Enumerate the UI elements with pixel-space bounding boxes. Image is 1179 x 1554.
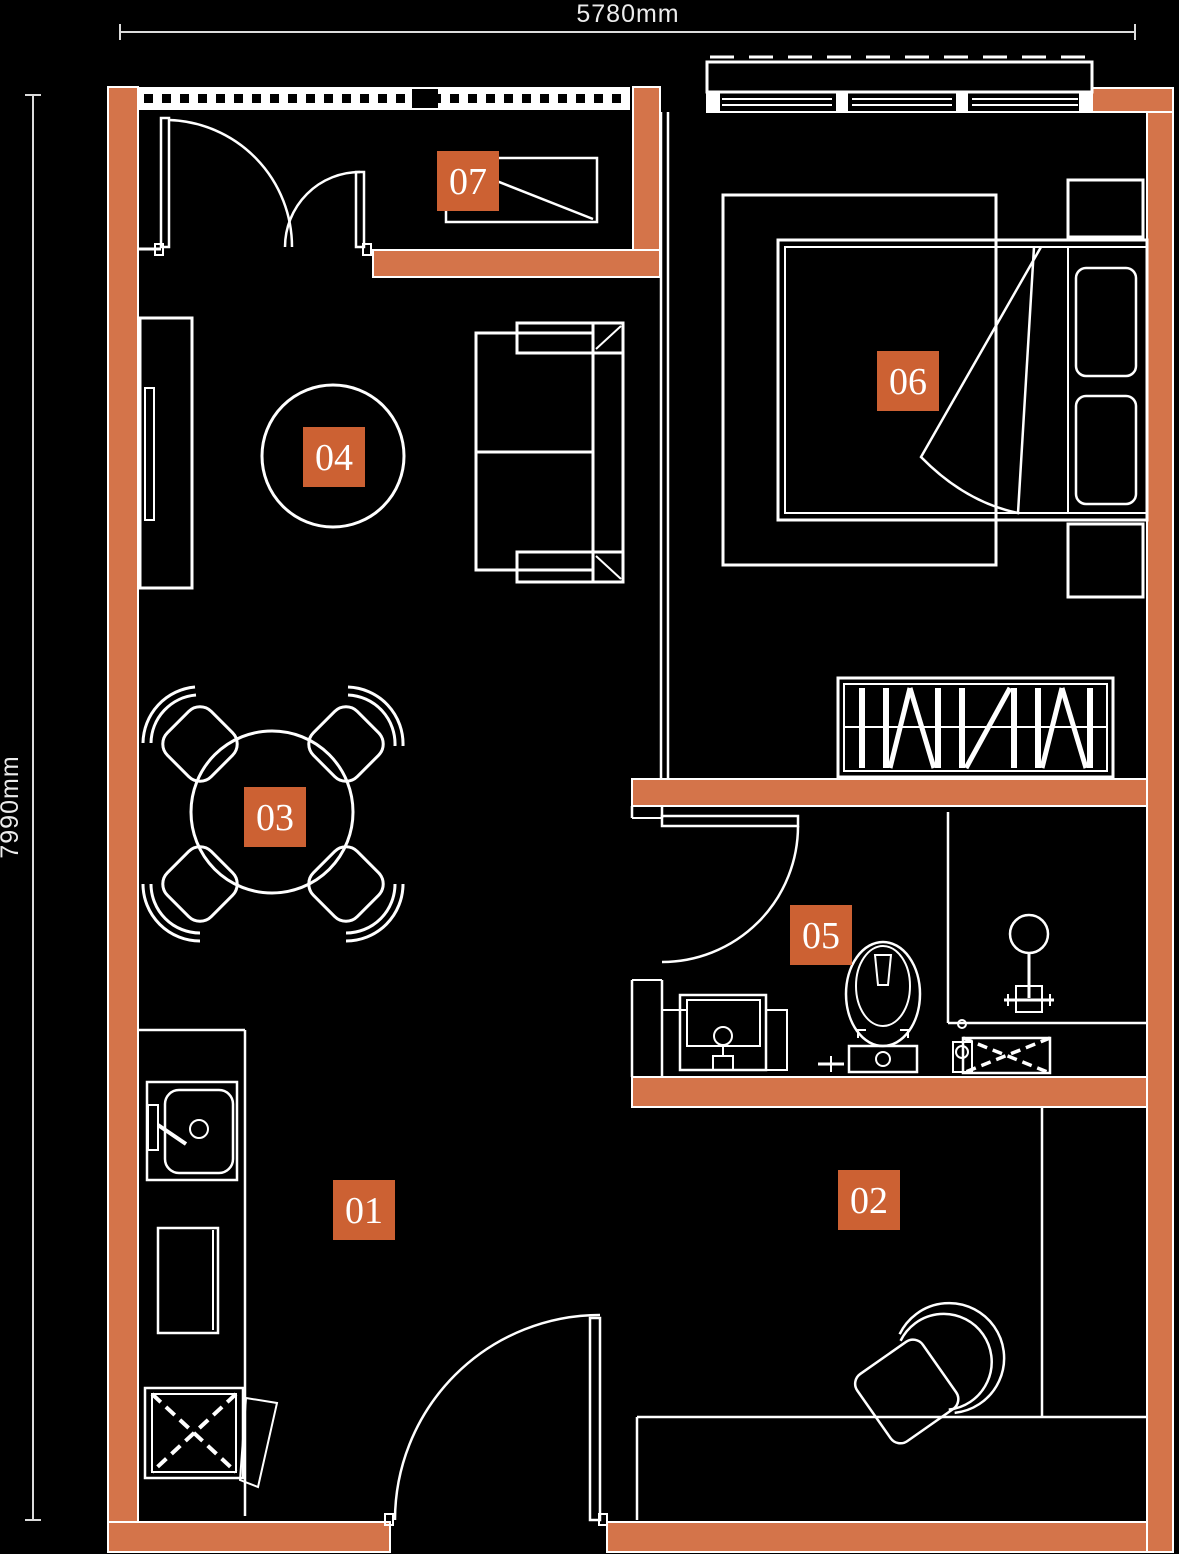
wall-bottom-right (607, 1522, 1173, 1552)
fridge (158, 1228, 218, 1333)
bathroom (632, 806, 1147, 1077)
balcony-window (138, 87, 630, 110)
floor-plan-drawing: 5780mm 7990mm (0, 0, 1179, 1554)
floor-drain-tap (818, 1056, 844, 1072)
room-label-04: 04 (303, 427, 365, 487)
pillow (1076, 396, 1136, 504)
wall-right (1147, 88, 1173, 1552)
room-label-01: 01 (333, 1180, 395, 1240)
bed (778, 240, 1147, 520)
vanity-sink (680, 995, 787, 1070)
wall-bathroom-top (632, 779, 1147, 806)
wall-bathroom-bottom (632, 1077, 1147, 1107)
tv (145, 388, 154, 520)
desk-chair (841, 1282, 1026, 1457)
room-label-07: 07 (437, 151, 499, 211)
room-number: 07 (449, 161, 487, 203)
pillow (1076, 268, 1136, 376)
room-label-05: 05 (790, 905, 852, 965)
door-swing-arc (285, 172, 360, 247)
dining-chair (143, 687, 244, 788)
door-swing-arc (169, 120, 292, 247)
bathroom-door-leaf (662, 816, 798, 826)
dining-chair (302, 840, 403, 941)
shower-tray (963, 1038, 1050, 1073)
living-room (140, 318, 623, 588)
shower-head (1010, 915, 1048, 953)
room-number: 06 (889, 361, 927, 403)
double-door-left-leaf (161, 118, 169, 247)
room-number: 02 (850, 1180, 888, 1222)
room-label-03: 03 (244, 787, 306, 847)
dining-chair (302, 687, 403, 788)
wall-left (108, 87, 138, 1552)
dimension-left: 7990mm (0, 95, 41, 1520)
kitchen (138, 1030, 277, 1516)
entrance-door-leaf (590, 1318, 600, 1520)
door-swing-arc (395, 1315, 600, 1520)
tv-cabinet (140, 318, 192, 588)
wall-balcony-right (633, 87, 660, 277)
toilet (846, 942, 920, 1072)
dining-chair (143, 840, 244, 941)
room-label-02: 02 (838, 1170, 900, 1230)
wall-bottom-left (108, 1522, 390, 1552)
balcony-area (138, 118, 597, 255)
wall-balcony-bottom (373, 250, 660, 277)
bedside-table (1068, 180, 1143, 237)
kitchen-sink (147, 1082, 237, 1180)
dimension-top: 5780mm (120, 0, 1135, 40)
room-number: 04 (315, 437, 353, 479)
room-number: 05 (802, 915, 840, 957)
door-swing-arc (662, 826, 798, 962)
wall-right-top-stub (1092, 88, 1173, 112)
bedside-table (1068, 524, 1143, 597)
entrance (385, 1315, 607, 1525)
sofa (476, 323, 623, 582)
room-number: 03 (256, 797, 294, 839)
floor-plan: 5780mm 7990mm (0, 0, 1179, 1554)
double-door-right-leaf (356, 172, 364, 247)
dimension-width-text: 5780mm (576, 0, 679, 28)
study-area (637, 1282, 1147, 1520)
room-number: 01 (345, 1190, 383, 1232)
shower (948, 915, 1147, 1073)
wardrobe (838, 678, 1113, 777)
bedroom-rug (723, 195, 996, 565)
washing-machine (145, 1388, 277, 1487)
dimension-height-text: 7990mm (0, 755, 24, 858)
room-label-06: 06 (877, 351, 939, 411)
bedroom-window (707, 57, 1092, 112)
